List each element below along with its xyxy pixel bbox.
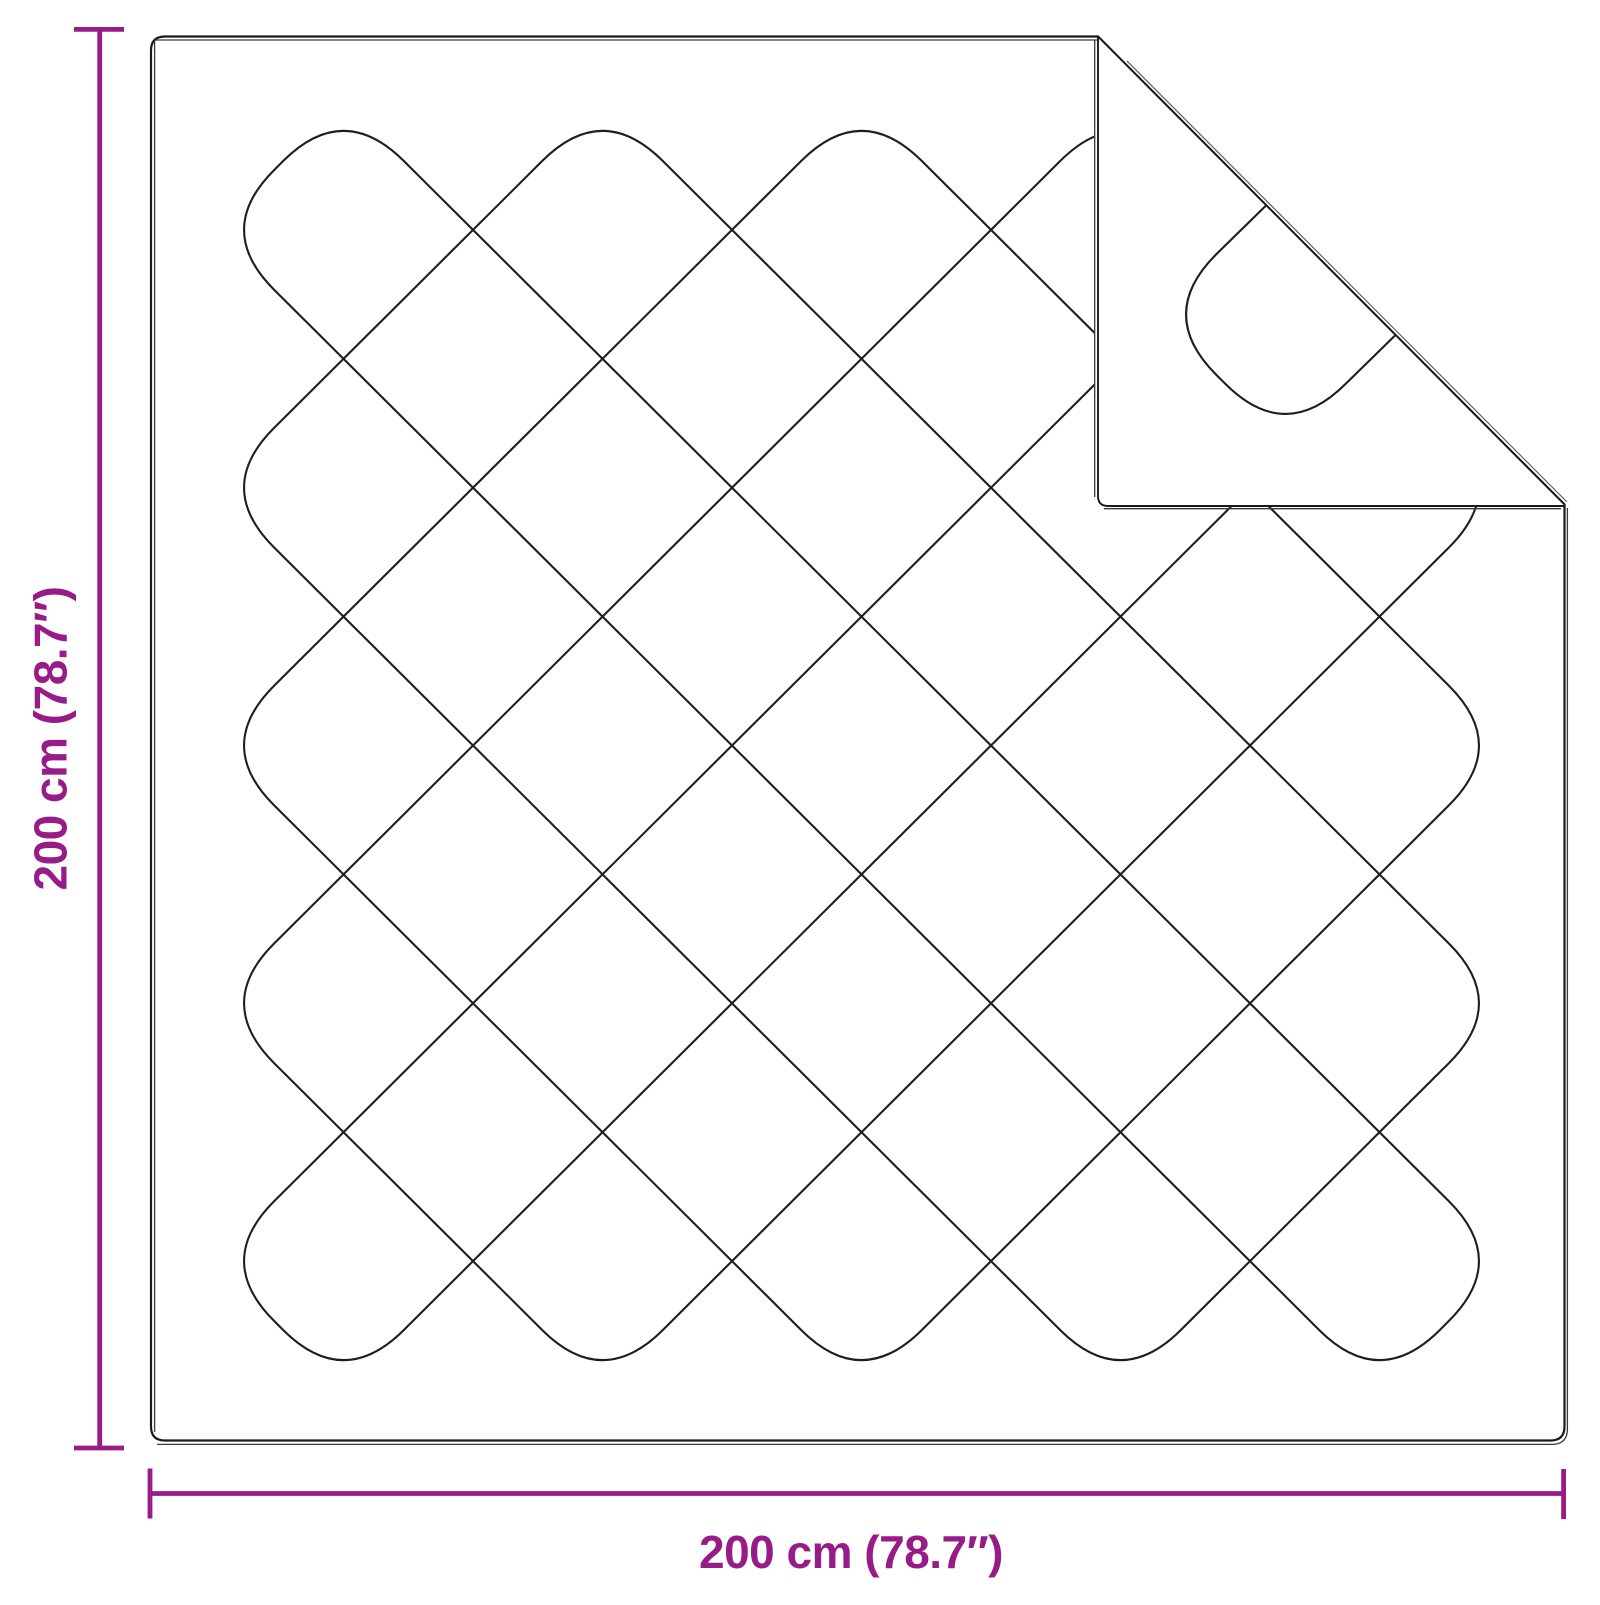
svg-text:200 cm (78.7″): 200 cm (78.7″) bbox=[699, 1526, 1003, 1578]
svg-text:200 cm (78.7″): 200 cm (78.7″) bbox=[25, 587, 77, 891]
